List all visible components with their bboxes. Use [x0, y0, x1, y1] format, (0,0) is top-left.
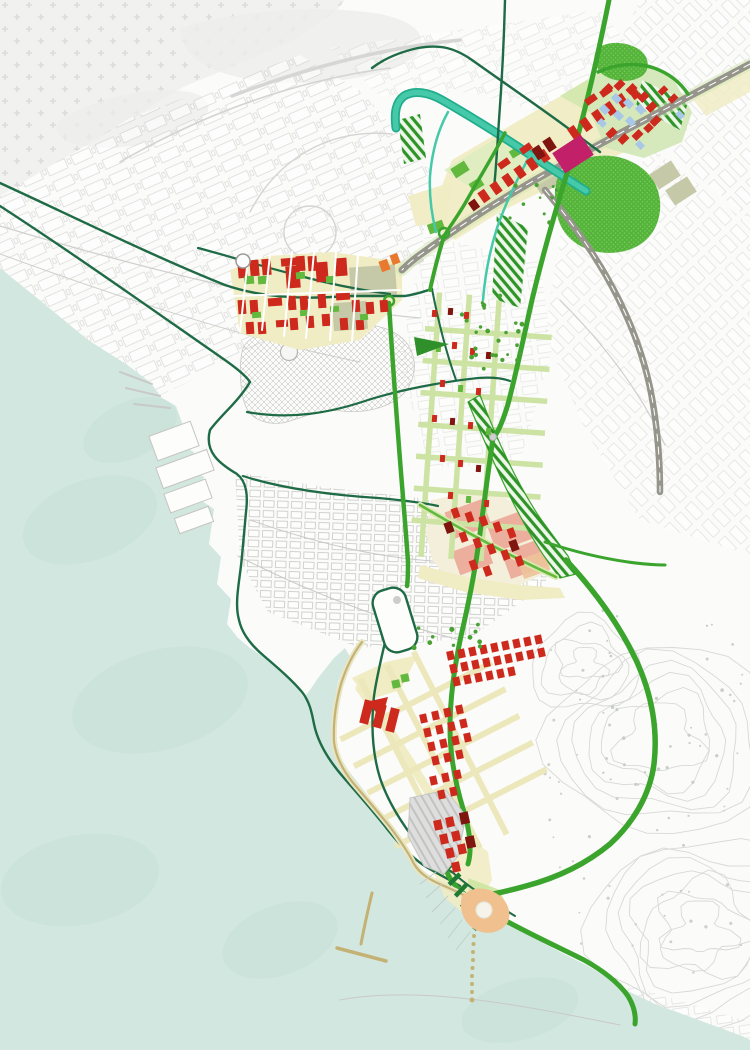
masterplan-map [0, 0, 750, 1050]
beach-circle [476, 902, 492, 918]
big-park [555, 156, 660, 253]
plaza-dot [393, 596, 401, 604]
masterplan-svg [0, 0, 750, 1050]
map-layer-stack [0, 0, 750, 1050]
contour-hill-3 [533, 612, 641, 707]
route-bright-loop-east [484, 560, 655, 896]
roundabout-west-zone [236, 254, 250, 268]
